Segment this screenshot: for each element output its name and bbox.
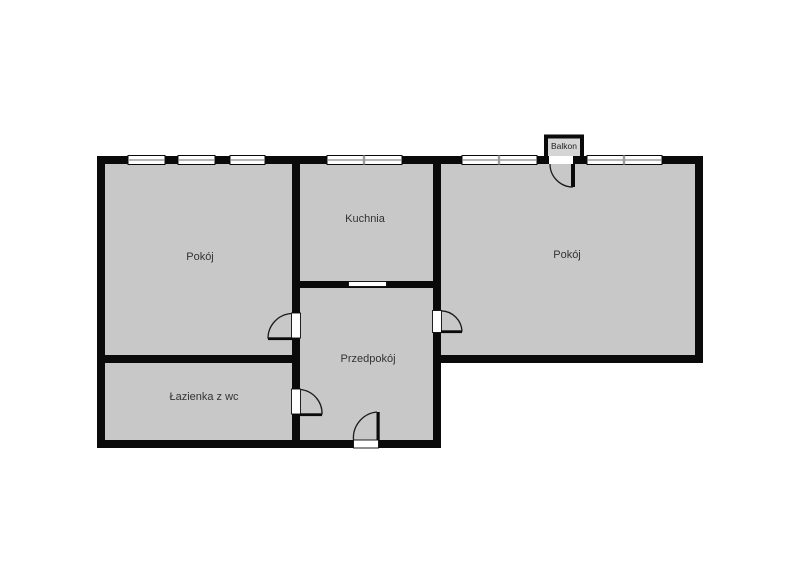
window-kuchnia	[327, 156, 402, 165]
floor-plan-drawing	[0, 0, 800, 585]
room-label-pokoj-right: Pokój	[553, 249, 581, 261]
room-label-przedpokoj: Przedpokój	[340, 353, 395, 365]
window-pokoj-left-3	[230, 156, 265, 165]
wall-vertical-center-right	[433, 164, 441, 448]
room-label-balkon: Balkon	[551, 141, 577, 151]
opening-kuchnia-przedpokoj	[349, 282, 387, 287]
floor-plan-canvas: Pokój Kuchnia Pokój Przedpokój Łazienka …	[0, 0, 800, 585]
wall-bottom-right-room	[433, 355, 703, 363]
room-label-lazienka-z-wc: Łazienka z wc	[169, 391, 238, 403]
wall-bottom	[97, 440, 441, 448]
window-pokoj-left-2	[178, 156, 215, 165]
wall-bathroom-top	[97, 355, 300, 363]
wall-right	[695, 156, 703, 363]
window-pokoj-left-1	[128, 156, 165, 165]
window-pokoj-right-1	[462, 156, 537, 165]
window-pokoj-right-2	[587, 156, 662, 165]
wall-left	[97, 156, 105, 448]
room-label-kuchnia: Kuchnia	[345, 213, 385, 225]
room-label-pokoj-left: Pokój	[186, 251, 214, 263]
